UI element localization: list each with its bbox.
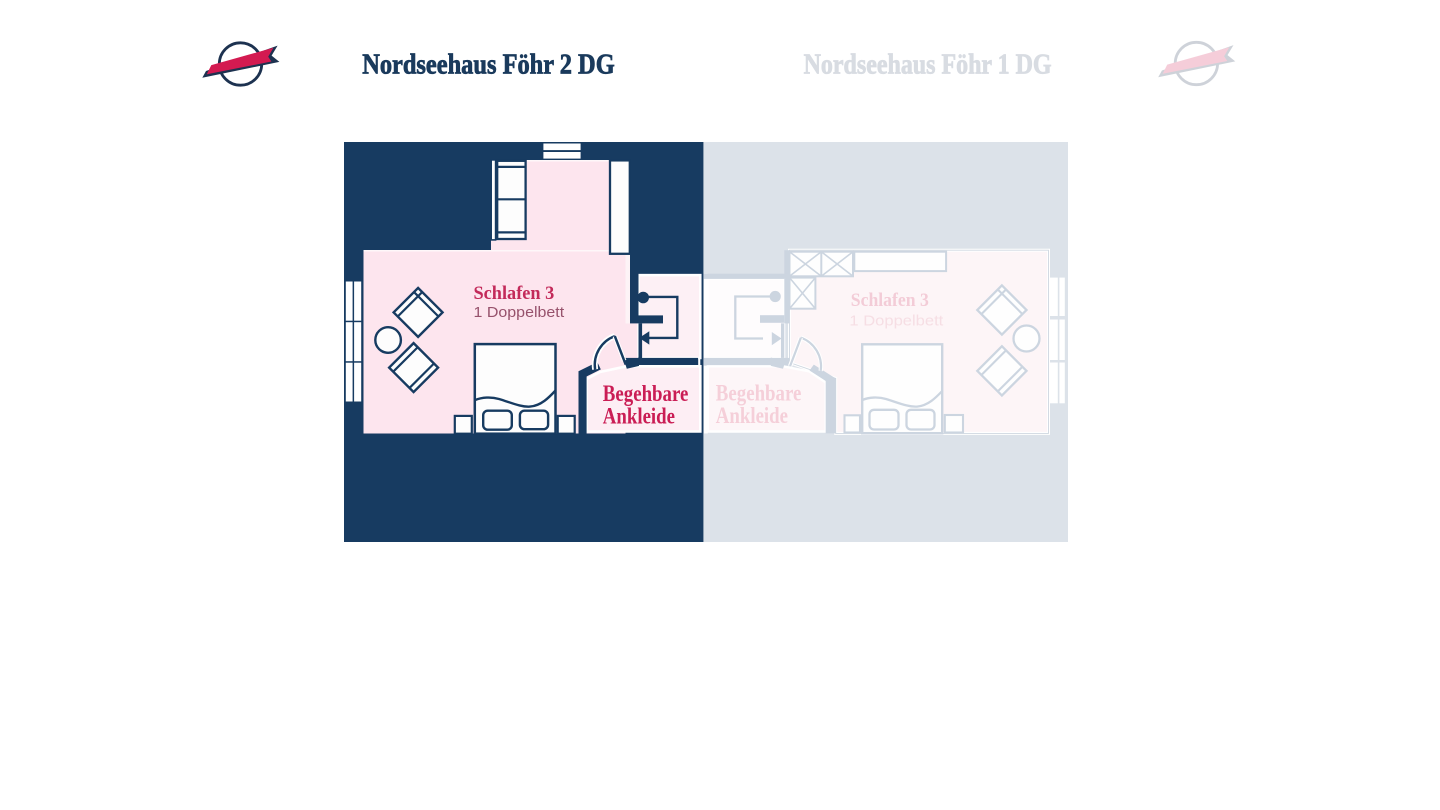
svg-text:Schlafen 3: Schlafen 3 xyxy=(474,283,555,304)
svg-text:Ankleide: Ankleide xyxy=(716,403,788,428)
svg-text:Begehbare: Begehbare xyxy=(716,380,802,405)
svg-text:Nordseehaus Föhr 1 DG: Nordseehaus Föhr 1 DG xyxy=(804,50,1052,81)
svg-text:Nordseehaus Föhr 2 DG: Nordseehaus Föhr 2 DG xyxy=(362,50,615,81)
svg-text:1 Doppelbett: 1 Doppelbett xyxy=(849,314,943,330)
svg-text:Schlafen 3: Schlafen 3 xyxy=(851,290,929,311)
svg-text:Ankleide: Ankleide xyxy=(603,404,675,429)
svg-text:Begehbare: Begehbare xyxy=(603,381,689,406)
svg-text:1 Doppelbett: 1 Doppelbett xyxy=(474,305,565,321)
